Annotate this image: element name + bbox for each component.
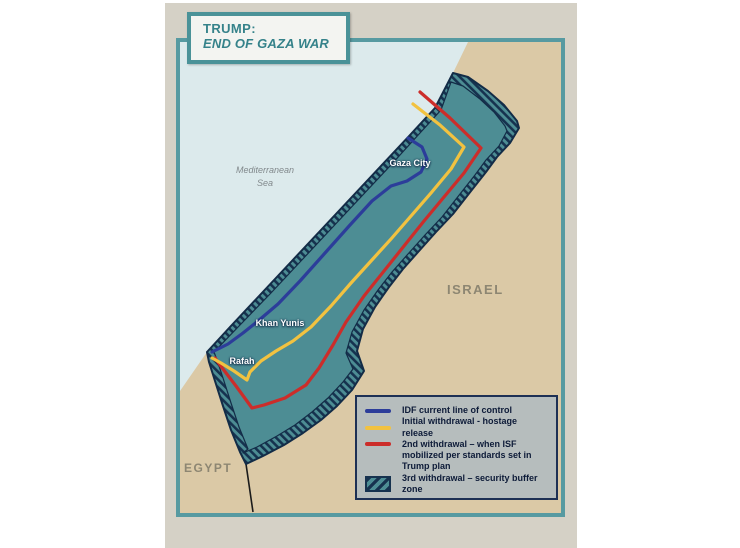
idf-line-swatch bbox=[365, 409, 395, 413]
legend-row-idf: IDF current line of control bbox=[365, 405, 549, 416]
legend-row-initial-withdrawal: Initial withdrawal - hostage release bbox=[365, 416, 549, 439]
legend-row-third-withdrawal: 3rd withdrawal – security buffer zone bbox=[365, 473, 549, 496]
legend: IDF current line of control Initial with… bbox=[355, 395, 558, 500]
legend-label-second-withdrawal: 2nd withdrawal – when ISF mobilized per … bbox=[402, 439, 549, 473]
initial-withdrawal-swatch bbox=[365, 426, 395, 430]
title-line-1: TRUMP: bbox=[203, 21, 342, 36]
legend-label-third-withdrawal: 3rd withdrawal – security buffer zone bbox=[402, 473, 549, 496]
legend-label-idf: IDF current line of control bbox=[402, 405, 512, 416]
infographic-canvas: TRUMP: END OF GAZA WAR Mediterranean Sea… bbox=[0, 0, 740, 548]
legend-label-initial-withdrawal: Initial withdrawal - hostage release bbox=[402, 416, 549, 439]
title-line-2: END OF GAZA WAR bbox=[203, 36, 342, 51]
title-box: TRUMP: END OF GAZA WAR bbox=[187, 12, 350, 64]
buffer-zone-swatch bbox=[365, 476, 395, 492]
second-withdrawal-swatch bbox=[365, 442, 395, 446]
legend-row-second-withdrawal: 2nd withdrawal – when ISF mobilized per … bbox=[365, 439, 549, 473]
